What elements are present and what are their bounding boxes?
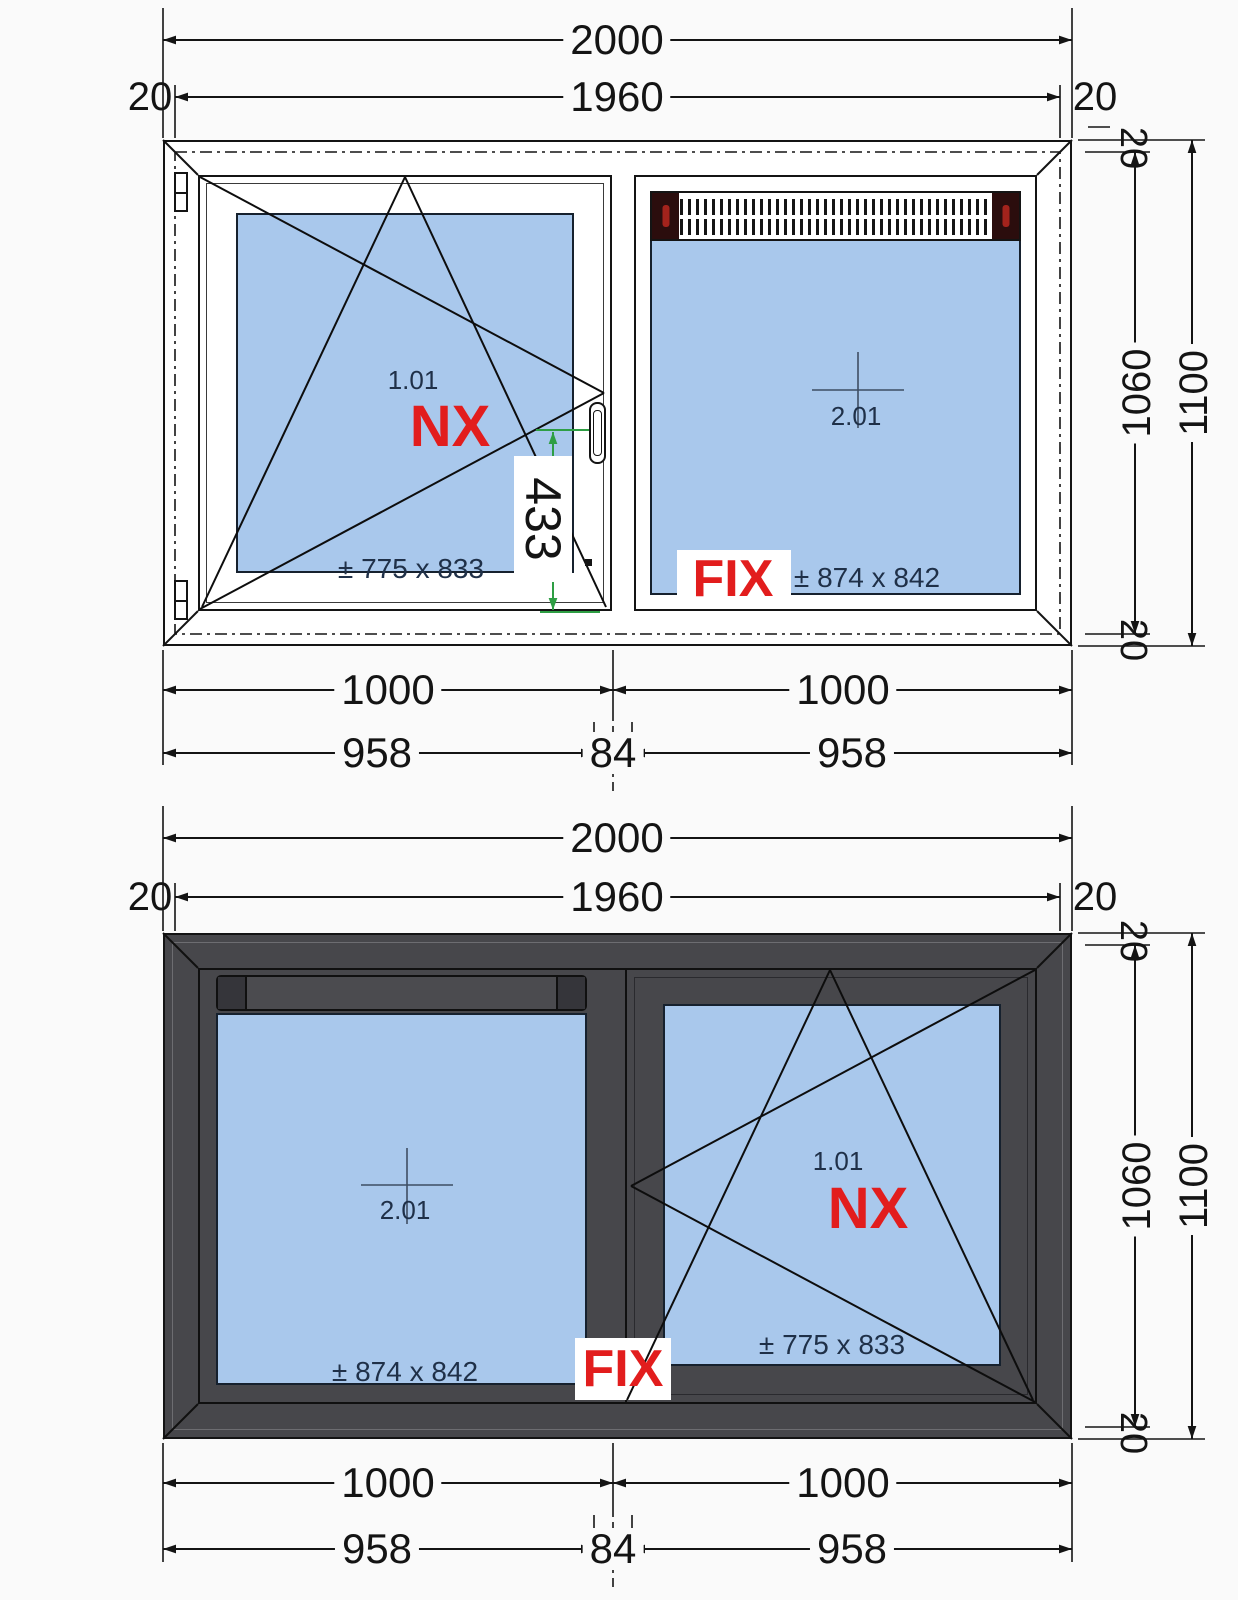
dim-mullion: 84 xyxy=(583,732,644,774)
dim-pane-left: 1000 xyxy=(334,1462,441,1504)
dimension-origin-marker xyxy=(585,559,592,566)
dim-pane-right: 1000 xyxy=(789,669,896,711)
dim-inner-width: 1960 xyxy=(563,76,670,118)
dim-edge-bottom-right: 20 xyxy=(1114,1412,1152,1454)
hinge-icon xyxy=(174,580,188,620)
sash-position-number: 1.01 xyxy=(388,367,439,393)
window-handle-lever xyxy=(593,410,602,456)
fixed-type-label: FIX xyxy=(693,553,774,605)
dim-edge-bottom-right: 20 xyxy=(1114,619,1152,661)
dim-edge-right: 20 xyxy=(1073,77,1118,117)
dim-pane-left: 1000 xyxy=(334,669,441,711)
dim-edge-left: 20 xyxy=(128,77,173,117)
dimension-lines xyxy=(163,838,1192,1549)
dim-sash-right: 958 xyxy=(810,1528,894,1570)
sash-position-number: 1.01 xyxy=(813,1148,864,1174)
dim-total-width: 2000 xyxy=(563,817,670,859)
extension-lines xyxy=(163,806,1205,1588)
sash-glass-size: ± 775 x 833 xyxy=(338,555,484,583)
dim-edge-top-right: 20 xyxy=(1114,920,1152,962)
fixed-type-label: FIX xyxy=(583,1343,664,1395)
hinge-icon xyxy=(174,172,188,212)
dim-pane-right: 1000 xyxy=(789,1462,896,1504)
sash-system-label: NX xyxy=(828,1180,909,1238)
dim-edge-right: 20 xyxy=(1073,877,1118,917)
dimension-lines xyxy=(163,40,1192,753)
dim-total-height: 1100 xyxy=(1174,344,1214,442)
dim-sash-left: 958 xyxy=(335,732,419,774)
dim-sash-right: 958 xyxy=(810,732,894,774)
dim-inner-height: 1060 xyxy=(1117,1136,1157,1237)
linework-bottom-view xyxy=(0,800,1238,1600)
sash-glass-size: ± 775 x 833 xyxy=(759,1331,905,1359)
dim-mullion: 84 xyxy=(583,1528,644,1570)
dim-total-height: 1100 xyxy=(1174,1137,1214,1235)
fixed-glass-size: ± 874 x 842 xyxy=(794,564,940,592)
dim-sash-left: 958 xyxy=(335,1528,419,1570)
dim-edge-left: 20 xyxy=(128,877,173,917)
window-drawing-sheet: 2000 1960 20 20 20 1060 1100 20 1000 100… xyxy=(0,0,1238,1600)
extension-lines xyxy=(163,8,1205,792)
dim-inner-width: 1960 xyxy=(563,876,670,918)
sash-system-label: NX xyxy=(410,398,491,456)
dim-edge-top-right: 20 xyxy=(1114,127,1152,169)
fixed-position-number: 2.01 xyxy=(831,403,882,429)
dim-total-width: 2000 xyxy=(563,19,670,61)
dim-handle-height: 433 xyxy=(518,477,568,560)
linework-top-view xyxy=(0,0,1238,800)
fixed-glass-size: ± 874 x 842 xyxy=(332,1358,478,1386)
dim-inner-height: 1060 xyxy=(1117,343,1157,444)
fixed-position-number: 2.01 xyxy=(380,1197,431,1223)
